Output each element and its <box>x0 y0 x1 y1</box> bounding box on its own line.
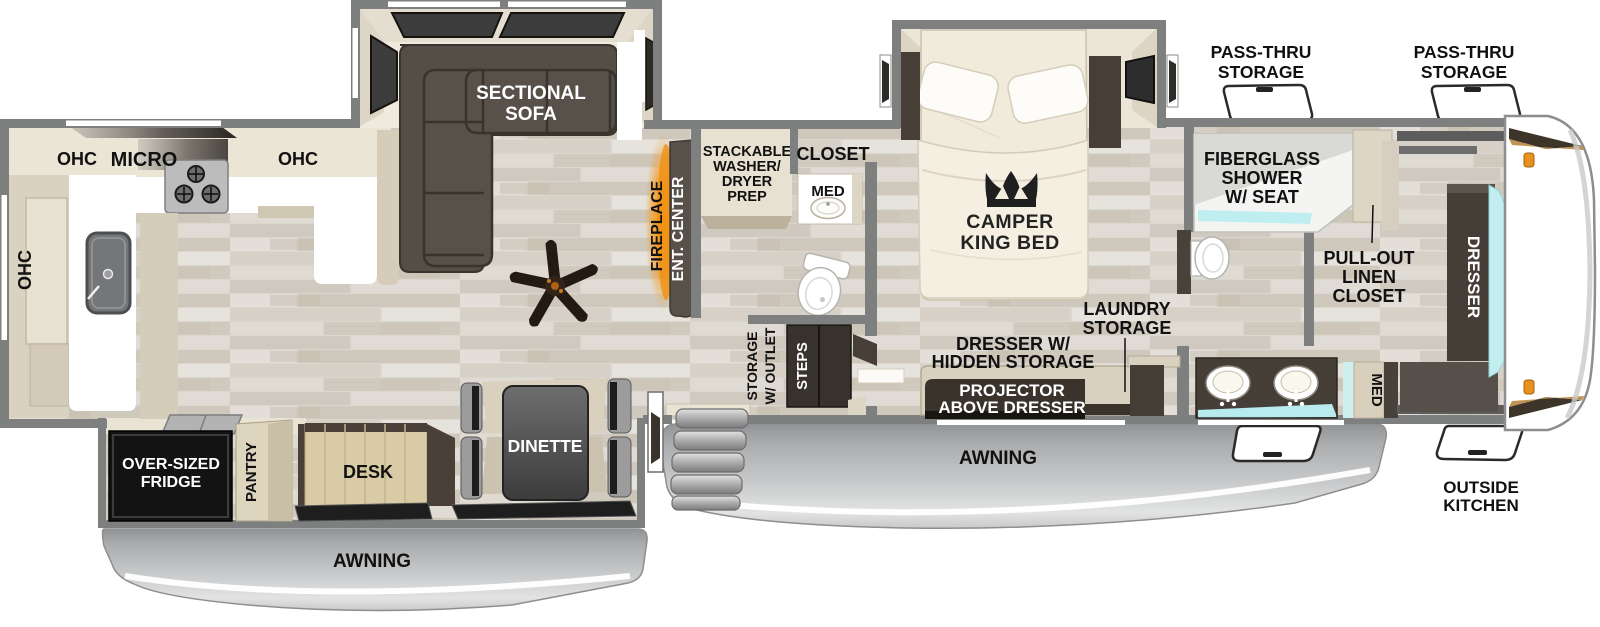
svg-text:MED: MED <box>1368 373 1385 407</box>
svg-text:AWNING: AWNING <box>333 551 411 572</box>
svg-text:HIDDEN STORAGE: HIDDEN STORAGE <box>932 352 1095 372</box>
svg-text:FIBERGLASS: FIBERGLASS <box>1204 149 1320 169</box>
svg-text:W/ OUTLET: W/ OUTLET <box>762 327 778 404</box>
svg-text:KING BED: KING BED <box>960 232 1059 254</box>
svg-text:STORAGE: STORAGE <box>1218 62 1304 82</box>
svg-text:PASS-THRU: PASS-THRU <box>1211 42 1312 62</box>
svg-text:DRYER: DRYER <box>722 174 773 190</box>
svg-text:LINEN: LINEN <box>1342 267 1396 287</box>
svg-text:DESK: DESK <box>343 462 393 482</box>
svg-text:AWNING: AWNING <box>959 448 1037 469</box>
svg-text:SECTIONAL: SECTIONAL <box>476 83 586 104</box>
svg-text:KITCHEN: KITCHEN <box>1443 496 1519 515</box>
svg-text:PASS-THRU: PASS-THRU <box>1414 42 1515 62</box>
svg-text:CLOSET: CLOSET <box>1332 286 1405 306</box>
svg-text:ABOVE DRESSER: ABOVE DRESSER <box>938 398 1085 417</box>
svg-text:ENT. CENTER: ENT. CENTER <box>670 176 687 281</box>
svg-text:STEPS: STEPS <box>795 342 811 390</box>
svg-text:STACKABLE: STACKABLE <box>703 144 792 160</box>
svg-text:OUTSIDE: OUTSIDE <box>1443 478 1519 497</box>
svg-text:PANTRY: PANTRY <box>243 442 260 502</box>
svg-text:FRIDGE: FRIDGE <box>141 474 202 491</box>
svg-text:FIREPLACE: FIREPLACE <box>649 180 666 271</box>
svg-text:W/ SEAT: W/ SEAT <box>1225 187 1299 207</box>
svg-text:SOFA: SOFA <box>505 104 557 125</box>
svg-text:OHC: OHC <box>15 250 35 290</box>
svg-text:SHOWER: SHOWER <box>1222 168 1303 188</box>
svg-text:OHC: OHC <box>278 149 318 169</box>
svg-text:PULL-OUT: PULL-OUT <box>1324 248 1415 268</box>
svg-text:CAMPER: CAMPER <box>966 211 1054 233</box>
svg-text:DRESSER: DRESSER <box>1464 236 1483 318</box>
svg-text:STORAGE: STORAGE <box>1083 318 1172 338</box>
svg-text:WASHER/: WASHER/ <box>713 159 781 175</box>
svg-text:DINETTE: DINETTE <box>508 436 583 456</box>
svg-text:DRESSER W/: DRESSER W/ <box>956 334 1070 354</box>
svg-text:STORAGE: STORAGE <box>1421 62 1507 82</box>
svg-text:MICRO: MICRO <box>111 149 178 171</box>
svg-text:PREP: PREP <box>727 189 767 205</box>
svg-text:CLOSET: CLOSET <box>796 144 869 164</box>
svg-text:OHC: OHC <box>57 149 97 169</box>
svg-text:OVER-SIZED: OVER-SIZED <box>122 456 220 473</box>
svg-text:STORAGE: STORAGE <box>744 332 760 401</box>
svg-text:LAUNDRY: LAUNDRY <box>1083 299 1170 319</box>
